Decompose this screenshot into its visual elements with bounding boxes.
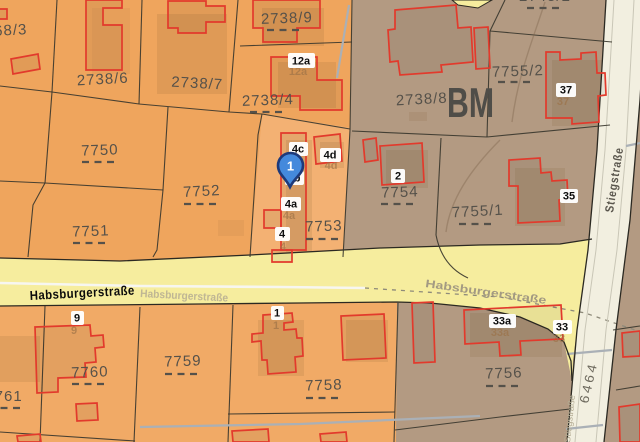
parcel-label: 7753: [305, 217, 343, 235]
parcel-label: 2738/4: [242, 91, 294, 110]
svg-text:4: 4: [280, 241, 287, 253]
svg-text:4a: 4a: [285, 199, 298, 211]
chip-33: 33: [553, 320, 572, 334]
svg-text:12a: 12a: [292, 56, 311, 68]
svg-text:9: 9: [74, 313, 80, 325]
svg-text:2: 2: [395, 171, 401, 183]
marker-label: 1: [287, 159, 294, 174]
svg-text:33a: 33a: [491, 327, 510, 339]
svg-text:4d: 4d: [324, 150, 337, 162]
svg-text:9: 9: [71, 325, 77, 337]
parcel-label: 7752: [183, 182, 221, 201]
chip-1: 1: [271, 306, 284, 320]
chip-35: 35: [560, 189, 578, 203]
svg-text:4: 4: [279, 229, 286, 241]
chip-4d: 4d: [320, 148, 341, 162]
parcel-label: 7751: [72, 222, 110, 240]
svg-text:4a: 4a: [283, 210, 296, 222]
parcel-label: 7756: [485, 364, 523, 382]
parcel-label: 7754: [381, 183, 419, 201]
parcel-label: 7759: [164, 352, 202, 370]
svg-text:37: 37: [560, 85, 572, 97]
svg-text:1: 1: [273, 320, 279, 332]
parcel-label: 7761: [0, 388, 23, 405]
chip-37: 37: [556, 83, 576, 97]
svg-text:1: 1: [274, 308, 280, 320]
svg-text:33: 33: [556, 322, 568, 334]
cadastral-map-canvas[interactable]: 68/3 2738/6 2738/7 2738/9 2738/4 2745/2 …: [0, 0, 640, 442]
parcel-label: 2738/9: [261, 9, 313, 28]
parcel-label: 2738/8: [395, 90, 448, 110]
parcel-label: 7750: [81, 141, 119, 159]
chip-4: 4: [275, 227, 290, 241]
chip-12a: 12a: [288, 53, 315, 68]
chip-2: 2: [391, 169, 405, 183]
parcel-label: 7755/1: [451, 202, 504, 222]
parcel-label: 2745/2: [519, 0, 571, 5]
parcel-label: 7760: [71, 363, 109, 381]
chip-4a: 4a: [281, 197, 301, 211]
area-label-bm: BM: [447, 79, 494, 126]
parcel-label: 2738/6: [76, 70, 129, 90]
chip-33a: 33a: [489, 314, 516, 328]
svg-text:35: 35: [563, 191, 575, 203]
parcel-label: 7755/2: [492, 62, 544, 81]
svg-text:33: 33: [553, 333, 565, 345]
svg-text:33a: 33a: [493, 316, 512, 328]
parcel-label: 2738/7: [171, 74, 224, 94]
parcel-label: 7758: [305, 376, 343, 394]
parcel-label: 68/3: [0, 21, 28, 40]
svg-text:37: 37: [557, 96, 569, 108]
chip-9: 9: [71, 311, 84, 325]
map-viewport[interactable]: 68/3 2738/6 2738/7 2738/9 2738/4 2745/2 …: [0, 0, 640, 442]
